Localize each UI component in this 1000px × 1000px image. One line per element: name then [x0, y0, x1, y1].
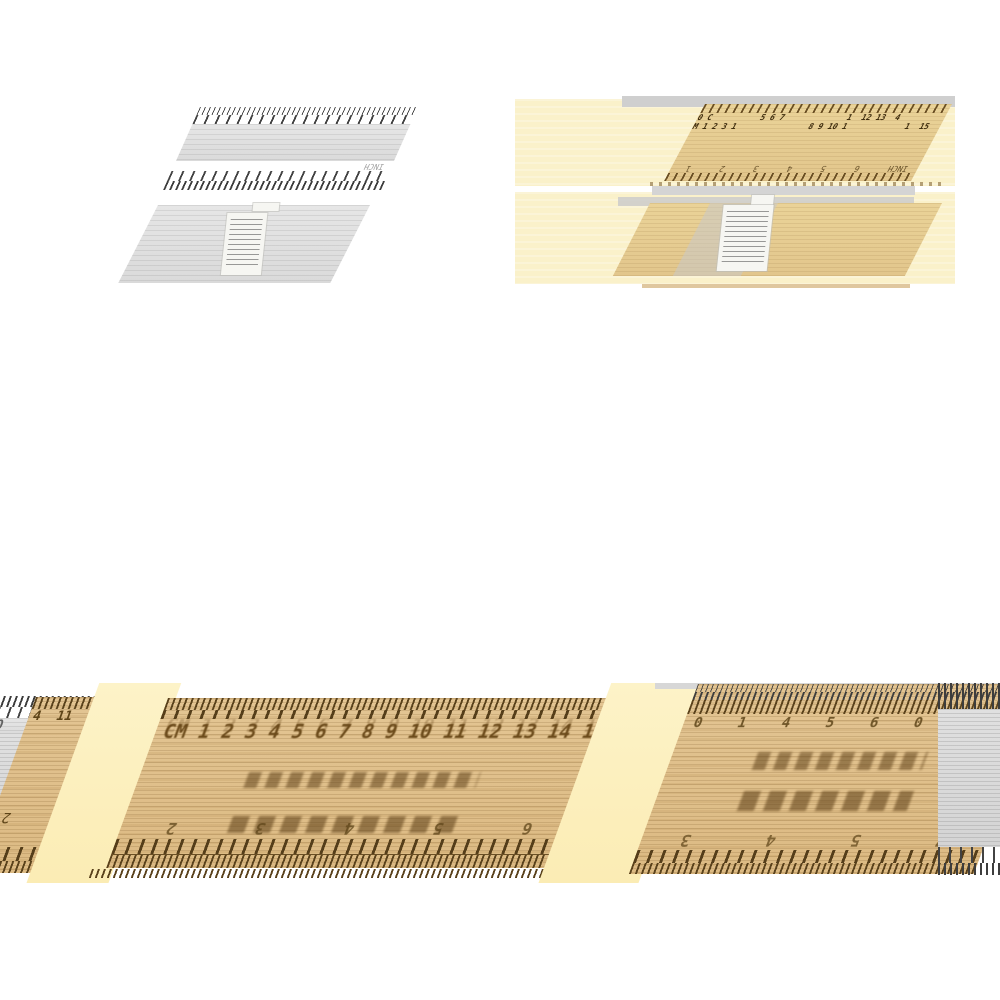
- thin-wood-strip: [642, 284, 910, 288]
- grayscale-bottom-fine-ticks: [938, 863, 1000, 875]
- wood-front-bottom-ticks: [664, 173, 915, 181]
- gray-front-inch-label-row: INCH: [172, 161, 394, 171]
- wood-front-body: [674, 131, 938, 163]
- main-cm-number-row: CM123456789101112131415: [151, 719, 619, 746]
- main-bottom-fine-ticks: [106, 854, 569, 868]
- inch-label-flipped: INCH: [362, 162, 385, 171]
- cm-scale-row-2: M 1 2 3 1 8 9 10 1 1 15: [691, 122, 943, 131]
- main-top-medium-ticks: [160, 710, 621, 719]
- cm-scale-row-1: 0 C 5 6 7 1 12 13 4: [695, 113, 947, 122]
- gray-front-body: [176, 124, 410, 161]
- gray-ruler-back-thumbnail: [118, 205, 370, 283]
- gray-front-bottom-medium-ticks: [167, 171, 389, 181]
- grayscale-body: [938, 709, 1000, 847]
- brand-engraving: [741, 752, 928, 800]
- gray-back-label-tab: [253, 203, 280, 211]
- right-bottom-fine-ticks: [629, 863, 978, 874]
- main-top-fine-ticks: [164, 698, 626, 710]
- wood-back-label-tab: [751, 195, 774, 205]
- detached-fine-tick-strip: [89, 869, 567, 878]
- gray-fine-tick-strip-middle: [652, 186, 915, 195]
- grayscale-top-ticks: [938, 683, 1000, 709]
- wood-ruler-closeup-main: CM123456789101112131415 23456: [106, 698, 626, 868]
- grayscale-right-section: [938, 683, 1000, 875]
- wood-front-top-ticks: [700, 104, 952, 113]
- grayscale-bottom-medium-ticks: [938, 847, 1000, 863]
- inch-scale-row-flipped: INCH 6 5 4 3 2 1: [668, 163, 920, 173]
- right-bottom-medium-ticks: [633, 850, 983, 863]
- gray-front-bottom-fine-ticks: [163, 181, 385, 190]
- gray-front-top-fine-ticks: [196, 107, 418, 115]
- main-inch-number-row-flipped: 23456: [117, 817, 583, 839]
- brand-engraving: [234, 772, 481, 814]
- label-text-lines: [721, 211, 769, 265]
- gray-front-top-medium-ticks: [192, 115, 414, 124]
- gray-ruler-front-thumbnail: INCH: [163, 107, 418, 190]
- flipped-digit: 2: [0, 809, 14, 825]
- label-text-lines: [225, 219, 262, 269]
- wood-ruler-back-thumbnail: [613, 203, 942, 276]
- ruler-product-photo: INCH 0 C 5 6 7 1 12 13 4 M 1 2 3 1 8 9 1…: [0, 0, 1000, 1000]
- main-body: [125, 746, 609, 817]
- ruler-closeup-section: 10 2 4 INCH 4 11 5 2 CM12345678910111213…: [0, 683, 1000, 883]
- wood-ruler-front-thumbnail: 0 C 5 6 7 1 12 13 4 M 1 2 3 1 8 9 10 1 1…: [664, 104, 952, 181]
- gray-back-label-sticker: [221, 213, 268, 275]
- wood-back-label-sticker: [717, 205, 774, 271]
- main-bottom-medium-ticks: [111, 839, 574, 854]
